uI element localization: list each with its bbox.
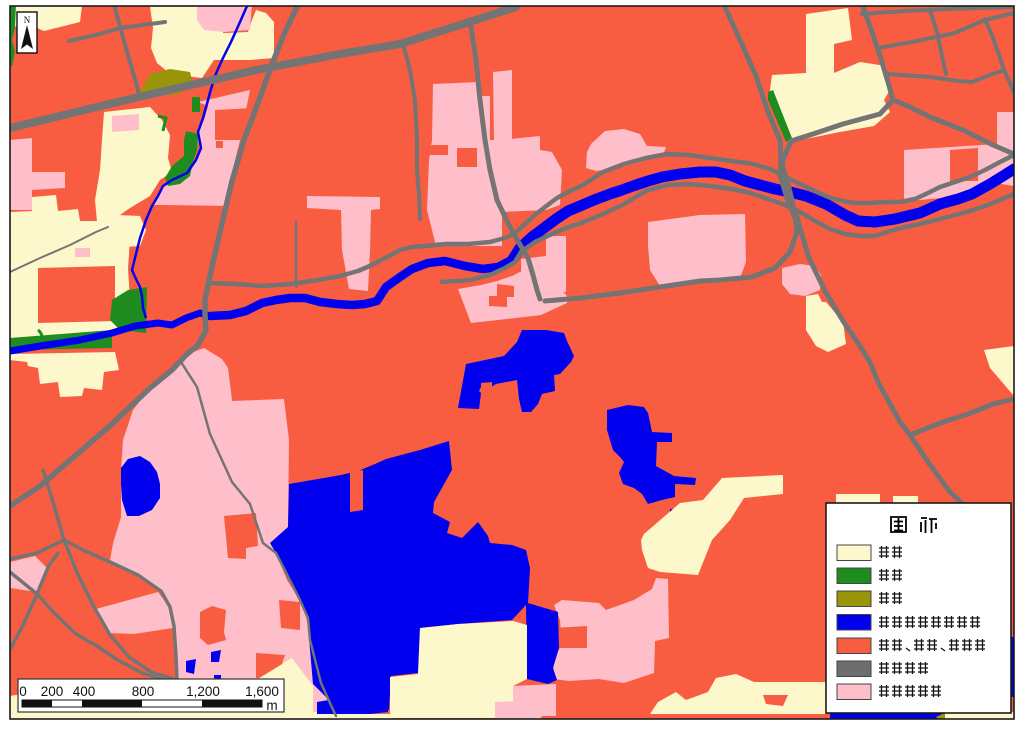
svg-text:N: N [24,15,31,25]
svg-text:800: 800 [132,684,155,699]
svg-text:1,200: 1,200 [186,684,220,699]
svg-text:m: m [266,698,277,713]
svg-text:1,600: 1,600 [245,684,279,699]
svg-text:400: 400 [73,684,96,699]
svg-text:0: 0 [19,684,27,699]
svg-text:200: 200 [41,684,64,699]
